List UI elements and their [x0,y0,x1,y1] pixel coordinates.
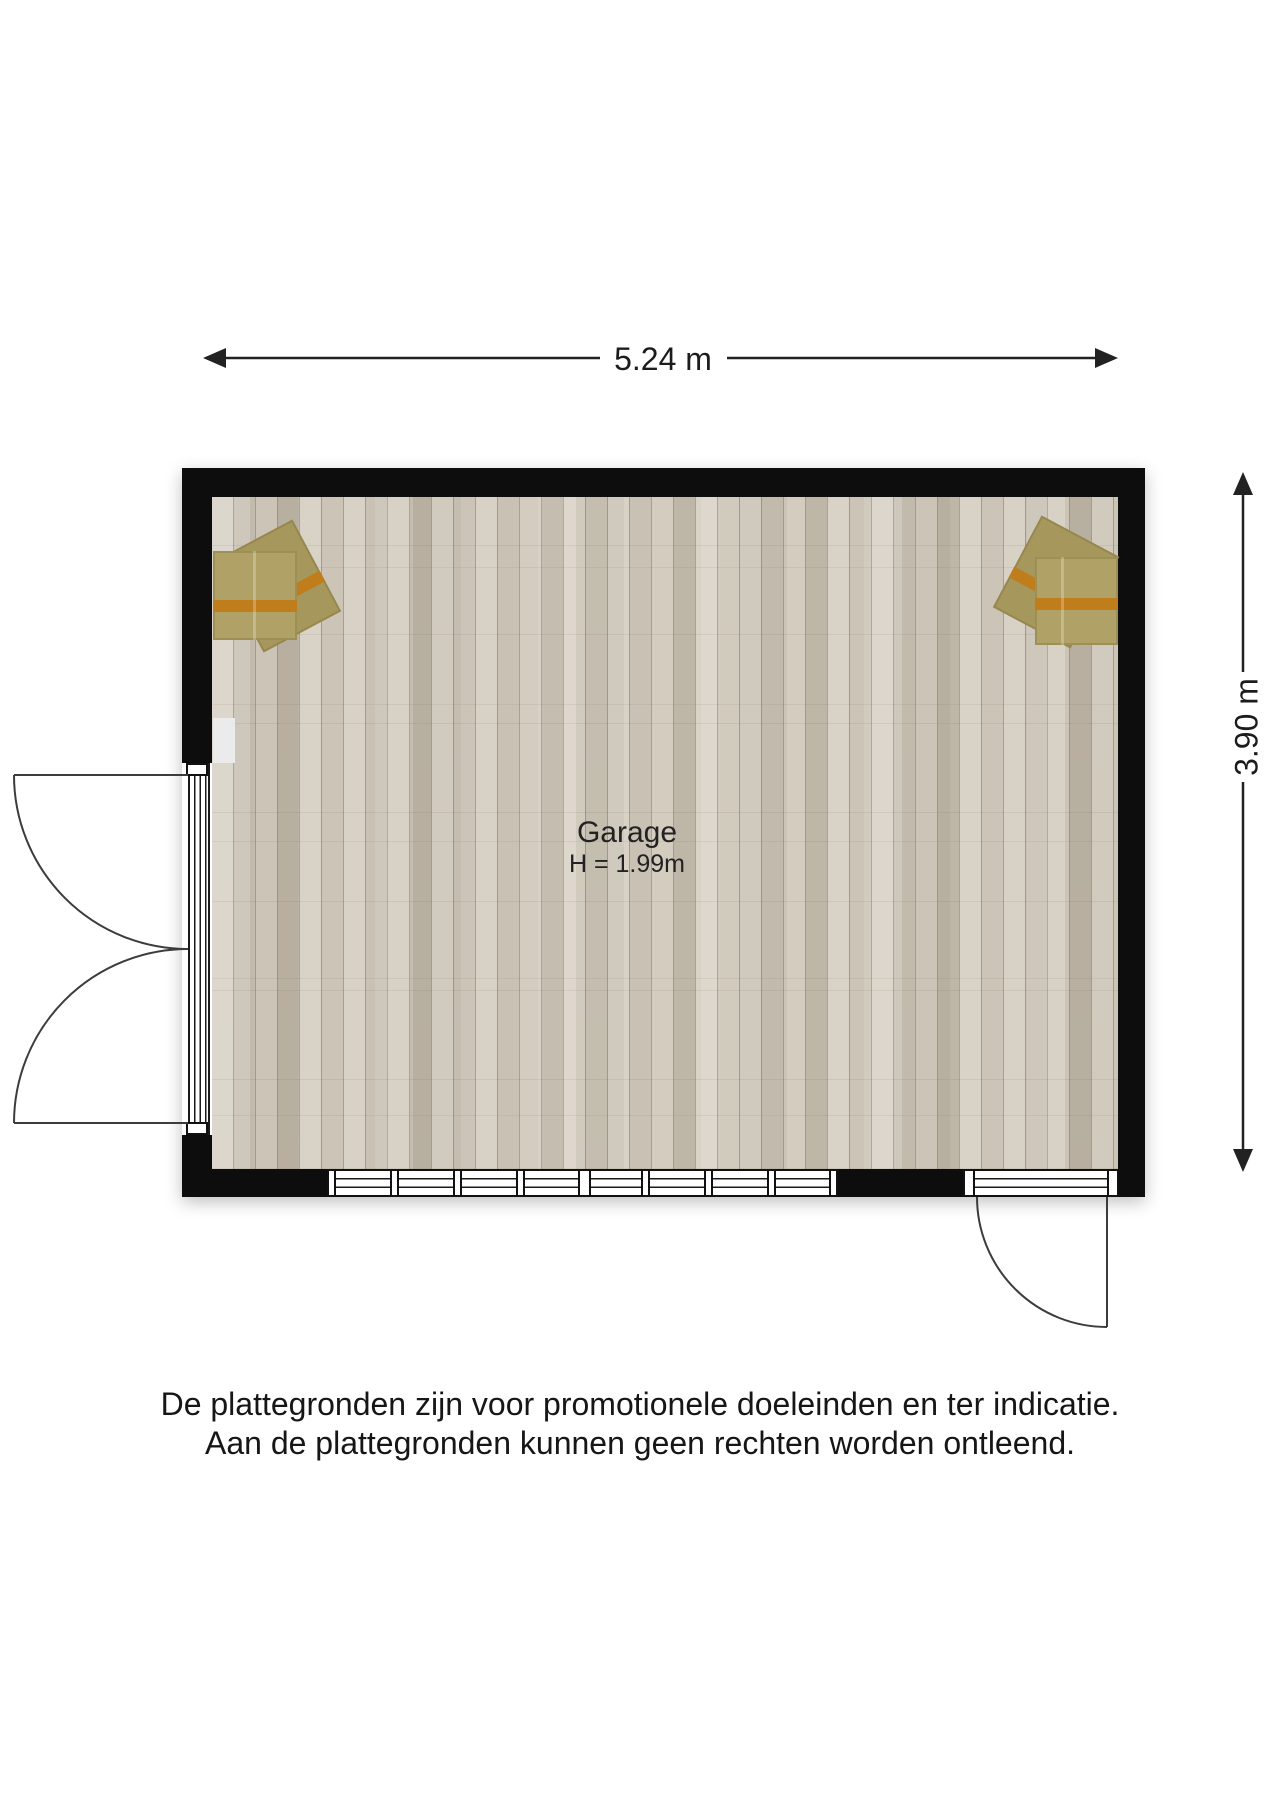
window-mullion [516,1169,525,1197]
disclaimer-text: De plattegronden zijn voor promotionele … [0,1385,1280,1463]
room-label-group: Garage H = 1.99m [569,816,685,878]
room-ceiling-height: H = 1.99m [569,850,685,878]
window-mullion [327,1169,336,1197]
cardboard-box-right [1035,557,1118,645]
window-mullion [641,1169,650,1197]
window-mullion [767,1169,776,1197]
left-double-door-swing [14,775,188,1123]
arrowhead-left-icon [203,348,226,368]
arrowhead-right-icon [1095,348,1118,368]
height-dimension-label: 3.90 m [1229,678,1266,776]
room-name: Garage [569,816,685,850]
box-tape [1035,598,1118,610]
door-jamb-post [1107,1169,1119,1197]
box-flap-seam [253,551,256,640]
door-frame-cap-bottom [186,1122,208,1135]
window-mullion [704,1169,713,1197]
disclaimer-line-1: De plattegronden zijn voor promotionele … [0,1385,1280,1424]
window-mullion [453,1169,462,1197]
disclaimer-line-2: Aan de plattegronden kunnen geen rechten… [0,1424,1280,1463]
door-jamb-post [963,1169,975,1197]
window-mullion [390,1169,399,1197]
window-mullion [829,1169,838,1197]
arrowhead-up-icon [1233,472,1253,495]
width-dimension-label: 5.24 m [614,341,712,378]
box-flap-seam [1061,557,1064,645]
left-door-frame [188,763,210,1135]
floorplan-page: 5.24 m 3.90 m [0,0,1280,1810]
door-frame-cap-top [186,763,208,776]
arrowhead-down-icon [1233,1149,1253,1172]
window-mullion [578,1169,591,1197]
door-threshold [213,718,235,763]
height-dimension-line [1233,472,1253,1172]
back-door-glazing [963,1169,1119,1197]
cardboard-box-left [213,551,297,640]
back-door-swing [977,1197,1107,1327]
